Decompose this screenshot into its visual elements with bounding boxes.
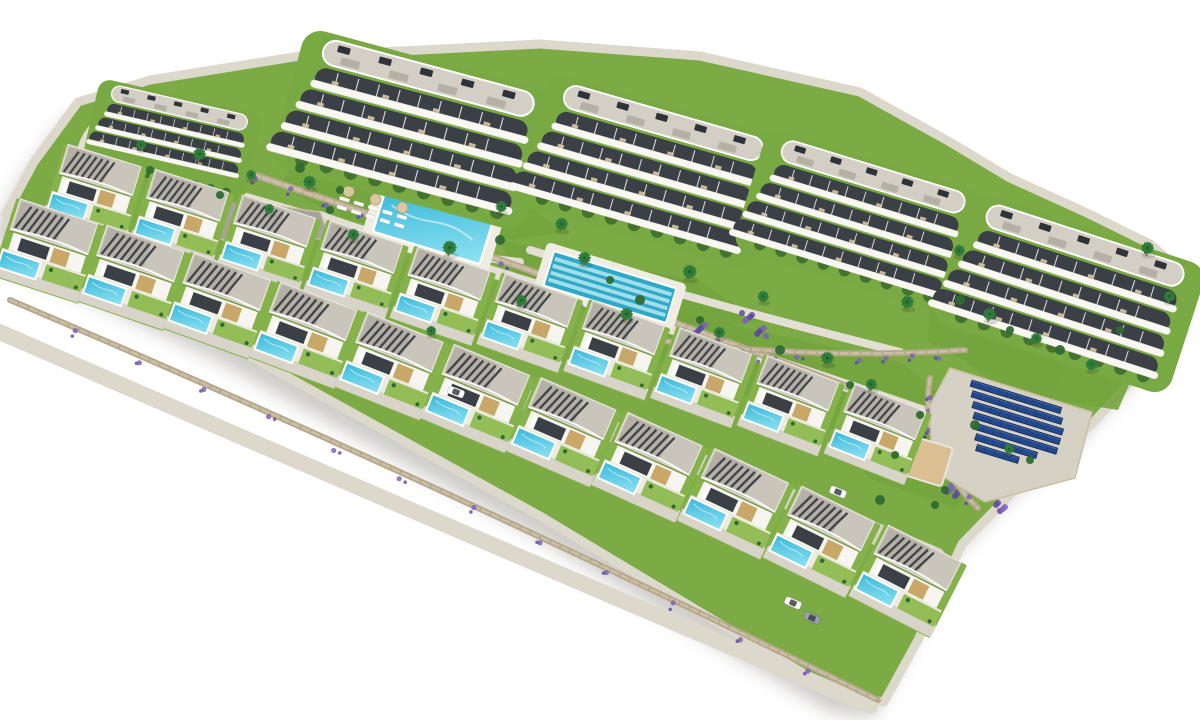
palm-crown [250,174,252,176]
lavender-bush [671,600,676,605]
palm-crown [430,330,432,332]
lavender-bush [934,356,938,360]
lavender-bush [499,261,504,266]
lavender-bush [668,608,672,612]
lavender-bush [801,357,805,361]
lavender-bush [883,356,888,361]
lavender-bush [286,192,290,196]
lavender-bush [70,334,74,338]
bush [970,420,980,430]
palm-crown [688,270,691,273]
bush [1116,326,1124,334]
palm-crown [870,383,873,386]
bush [295,163,305,173]
bush [696,316,704,324]
lavender-patch [754,331,760,337]
lavender-bush [321,204,325,208]
palm-crown [718,331,721,334]
lavender-bush [964,502,968,506]
bush [635,295,645,305]
lavender-bush [469,510,473,514]
bush [1055,345,1065,355]
development-aerial-render [0,0,1200,720]
bush [891,451,899,459]
palm-crown [500,205,503,208]
lavender-patch [702,322,708,328]
lavender-bush [356,215,360,219]
lavender-bush [73,328,78,333]
lavender-bush [794,355,799,360]
lavender-bush [266,414,271,419]
lavender-patch [763,333,769,339]
palm-crown [1090,363,1093,366]
lavender-bush [925,431,929,435]
lavender-bush [403,480,407,484]
lavender-patch [1000,506,1006,512]
palm-crown [1035,337,1038,340]
bush [1026,456,1034,464]
bush [1006,326,1014,334]
bush [146,166,154,174]
bush [336,186,344,194]
lavender-bush [855,361,859,365]
palm-crown [268,208,270,210]
lavender-bush [273,417,277,421]
lavender-bush [338,451,342,455]
palm-crown [352,233,355,236]
bush [955,295,965,305]
bush [775,345,785,355]
lavender-bush [535,540,539,544]
bush [846,381,854,389]
bush [326,206,334,214]
lavender-bush [925,398,929,402]
palm-crown [988,313,991,316]
bush [941,486,949,494]
palm-crown [448,246,451,249]
aerial-render-canvas [0,0,1200,720]
palm-crown [308,181,311,184]
lavender-bush [966,494,971,499]
lavender-bush [910,353,915,358]
lavender-bush [505,267,509,271]
palm-crown [1008,448,1010,450]
palm-crown [906,301,909,304]
palm-crown [762,295,765,298]
palm-crown [140,144,142,146]
lavender-patch [952,493,958,499]
lavender-bush [199,389,203,393]
palm-crown [958,249,961,252]
lavender-patch [739,310,745,316]
bush [216,191,224,199]
lavender-bush [397,476,402,481]
bush [931,501,939,509]
lavender-bush [756,360,760,364]
palm-crown [1146,247,1149,250]
lavender-patch [761,325,767,331]
palm-crown [583,257,586,260]
lavender-bush [135,362,139,366]
palm-crown [198,153,201,156]
palm-crown [1168,295,1171,298]
lavender-bush [881,360,885,364]
lavender-bush [331,448,336,453]
bush [916,411,924,419]
lavender-patch [742,318,748,324]
palm-crown [826,357,829,360]
lavender-bush [471,505,476,510]
bush [495,235,505,245]
palm-crown [520,299,523,302]
palm-crown [625,313,628,316]
lavender-patch [747,314,753,320]
lavender-bush [803,672,807,676]
lavender-bush [907,358,911,362]
bush [606,276,614,284]
bush [875,495,885,505]
palm-crown [560,223,563,226]
lavender-patch [993,502,999,508]
lavender-bush [602,571,606,575]
lavender-bush [736,639,740,643]
lavender-bush [288,186,293,191]
